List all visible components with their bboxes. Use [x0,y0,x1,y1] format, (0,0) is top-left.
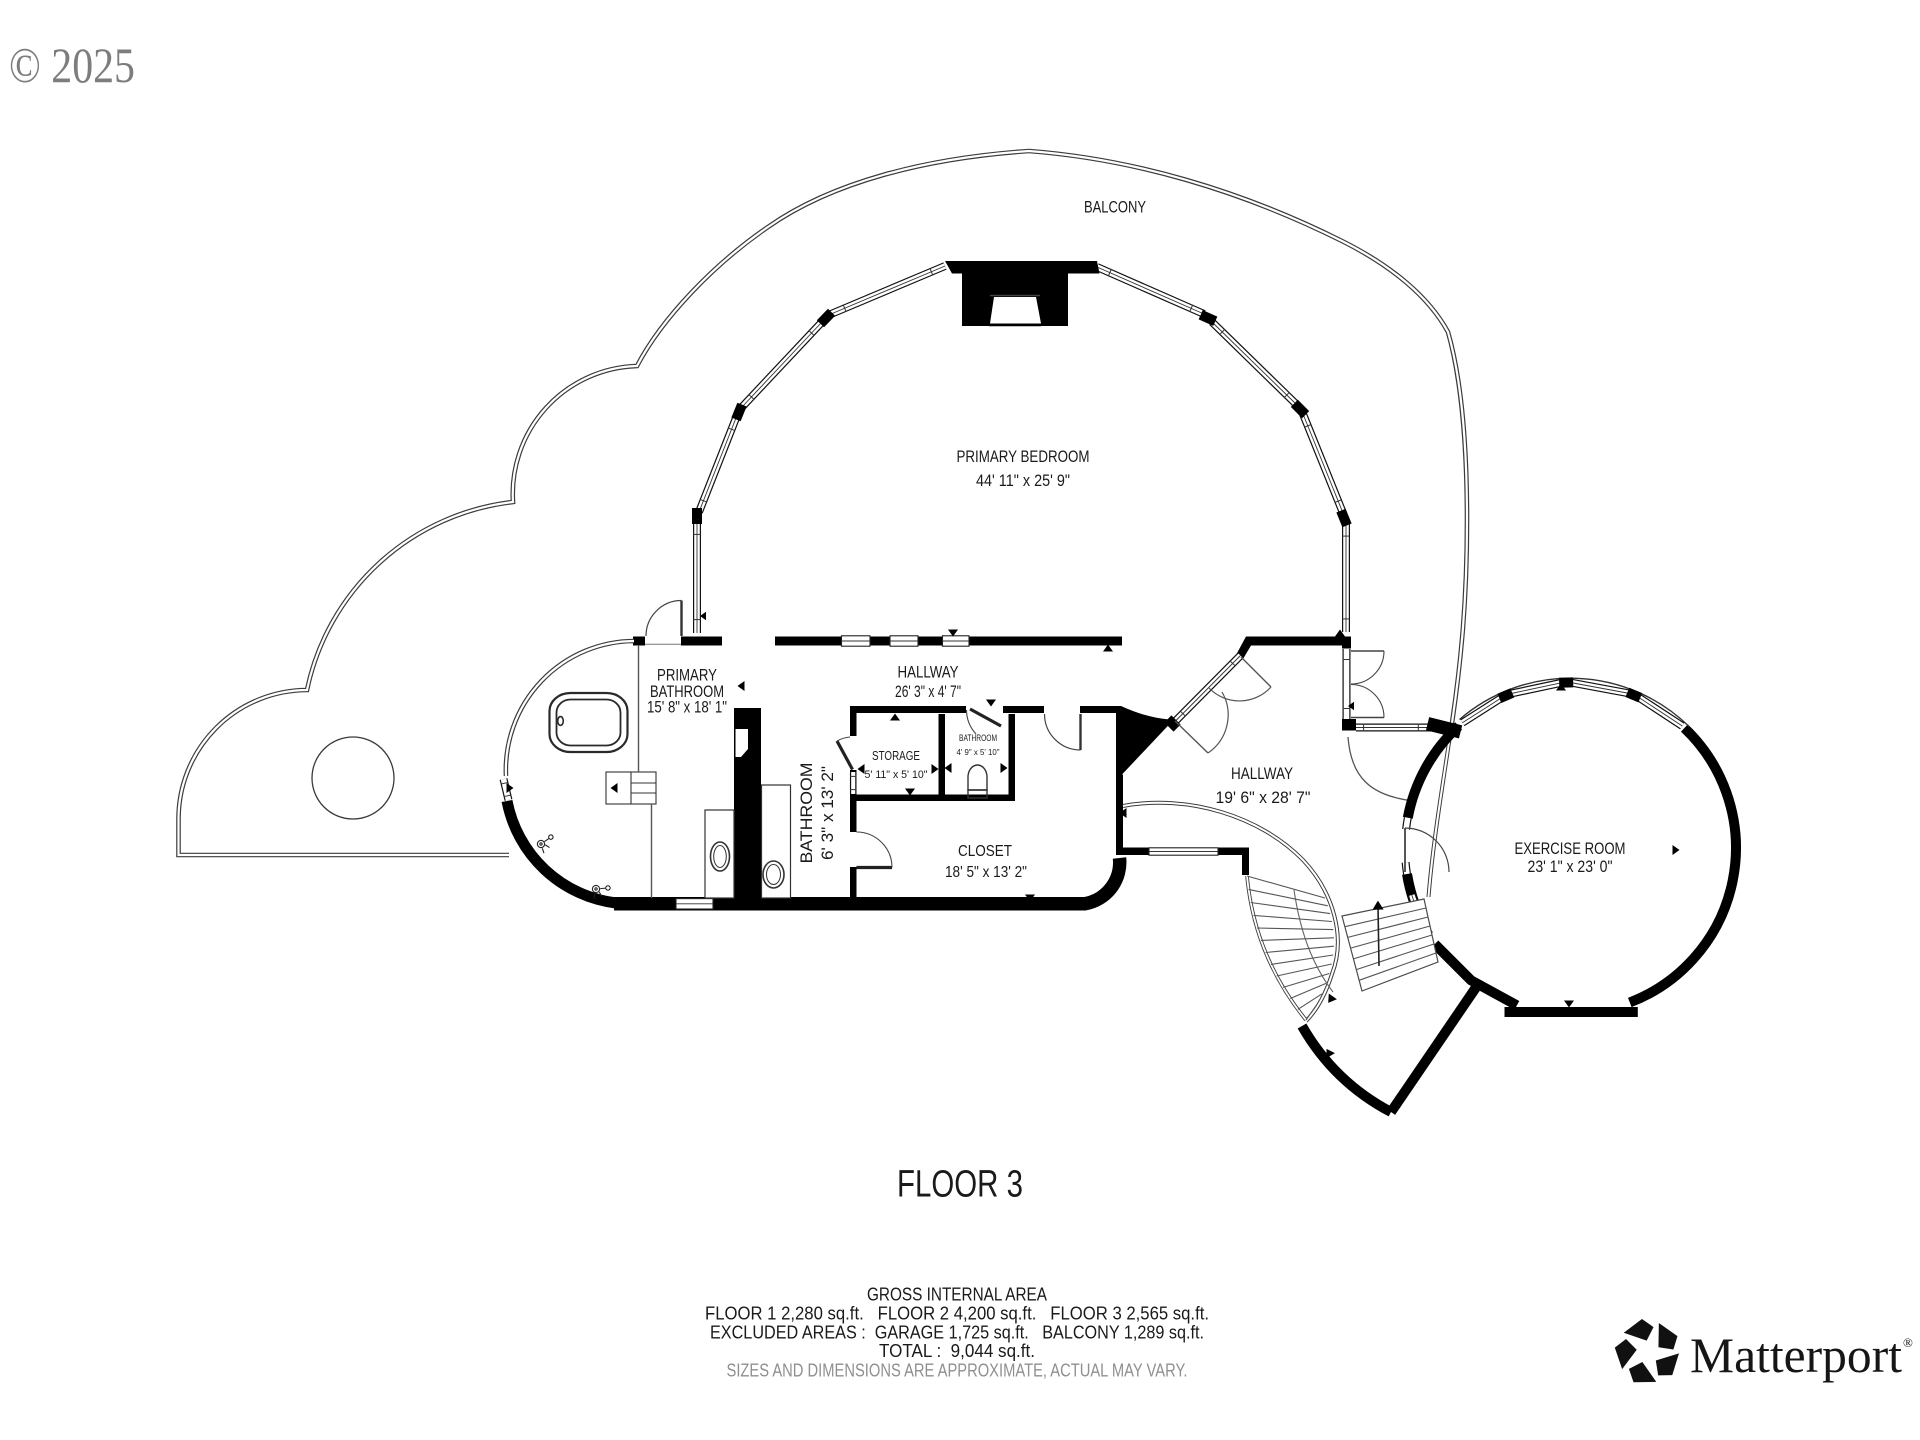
svg-text:23' 1" x 23' 0": 23' 1" x 23' 0" [1528,857,1613,876]
svg-text:15' 8" x 18' 1": 15' 8" x 18' 1" [647,698,727,717]
svg-text:EXERCISE ROOM: EXERCISE ROOM [1515,839,1626,858]
svg-text:CLOSET: CLOSET [958,843,1012,860]
svg-text:18' 5" x 13' 2": 18' 5" x 13' 2" [945,864,1027,881]
svg-text:PRIMARY BEDROOM: PRIMARY BEDROOM [957,447,1090,466]
svg-text:EXCLUDED AREAS : GARAGE 1,725: EXCLUDED AREAS : GARAGE 1,725 sq.ft. BAL… [710,1323,1204,1343]
svg-text:TOTAL : 9,044 sq.ft.: TOTAL : 9,044 sq.ft. [879,1341,1035,1361]
svg-text:HALLWAY: HALLWAY [1231,764,1293,783]
svg-text:GROSS INTERNAL AREA: GROSS INTERNAL AREA [867,1285,1047,1305]
svg-text:© 2025: © 2025 [9,37,135,93]
svg-text:SIZES AND DIMENSIONS ARE APPRO: SIZES AND DIMENSIONS ARE APPROXIMATE, AC… [727,1361,1188,1381]
svg-text:BALCONY: BALCONY [1084,198,1146,217]
svg-text:Matterport: Matterport [1690,1327,1902,1383]
svg-text:26' 3" x 4' 7": 26' 3" x 4' 7" [895,682,961,701]
svg-text:6' 3" x 13' 2": 6' 3" x 13' 2" [818,766,837,860]
svg-text:HALLWAY: HALLWAY [898,663,959,682]
svg-text:4' 9" x 5' 10": 4' 9" x 5' 10" [957,748,1000,757]
svg-text:5' 11" x 5' 10": 5' 11" x 5' 10" [865,769,928,781]
svg-text:FLOOR 1 2,280 sq.ft. FLOOR 2: FLOOR 1 2,280 sq.ft. FLOOR 2 4,200 sq.ft… [705,1304,1209,1324]
svg-text:44' 11" x 25' 9": 44' 11" x 25' 9" [976,471,1070,490]
svg-text:FLOOR 3: FLOOR 3 [897,1164,1023,1206]
svg-text:®: ® [1903,1335,1913,1350]
svg-text:STORAGE: STORAGE [872,749,920,763]
svg-text:BATHROOM: BATHROOM [797,763,816,864]
svg-text:BATHROOM: BATHROOM [959,733,997,743]
svg-text:19' 6" x 28' 7": 19' 6" x 28' 7" [1216,788,1311,807]
